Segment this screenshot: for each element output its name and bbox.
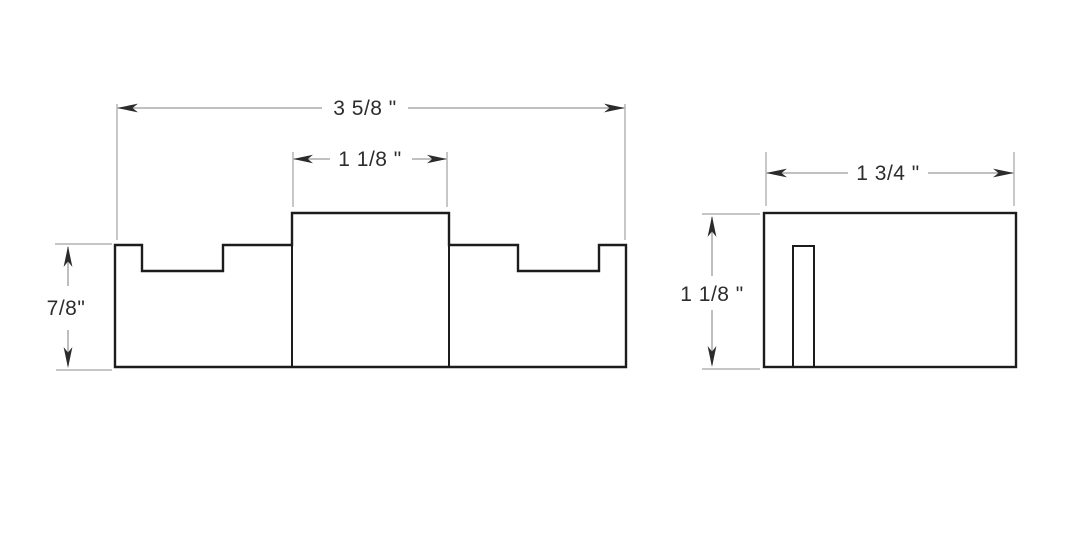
dim-label-body-height: 7/8": [47, 297, 86, 320]
dim-label-center-block-width: 1 1/8 ": [338, 148, 402, 171]
side-view-outline: [764, 213, 1016, 367]
dim-label-side-height: 1 1/8 ": [680, 283, 744, 306]
front-view: [115, 213, 626, 367]
front-dim-body-height: 7/8": [47, 244, 112, 370]
drawing-canvas: 3 5/8 " 1 1/8 " 7/8": [0, 0, 1080, 544]
dim-label-overall-width: 3 5/8 ": [333, 97, 397, 120]
front-dim-center-block-width: 1 1/8 ": [293, 148, 447, 207]
side-dim-width: 1 3/4 ": [766, 152, 1014, 206]
dim-label-side-width: 1 3/4 ": [856, 162, 920, 185]
front-view-outline: [115, 213, 626, 367]
side-view: [764, 213, 1016, 367]
side-dim-height: 1 1/8 ": [680, 214, 760, 369]
technical-drawing-svg: 3 5/8 " 1 1/8 " 7/8": [0, 0, 1080, 544]
